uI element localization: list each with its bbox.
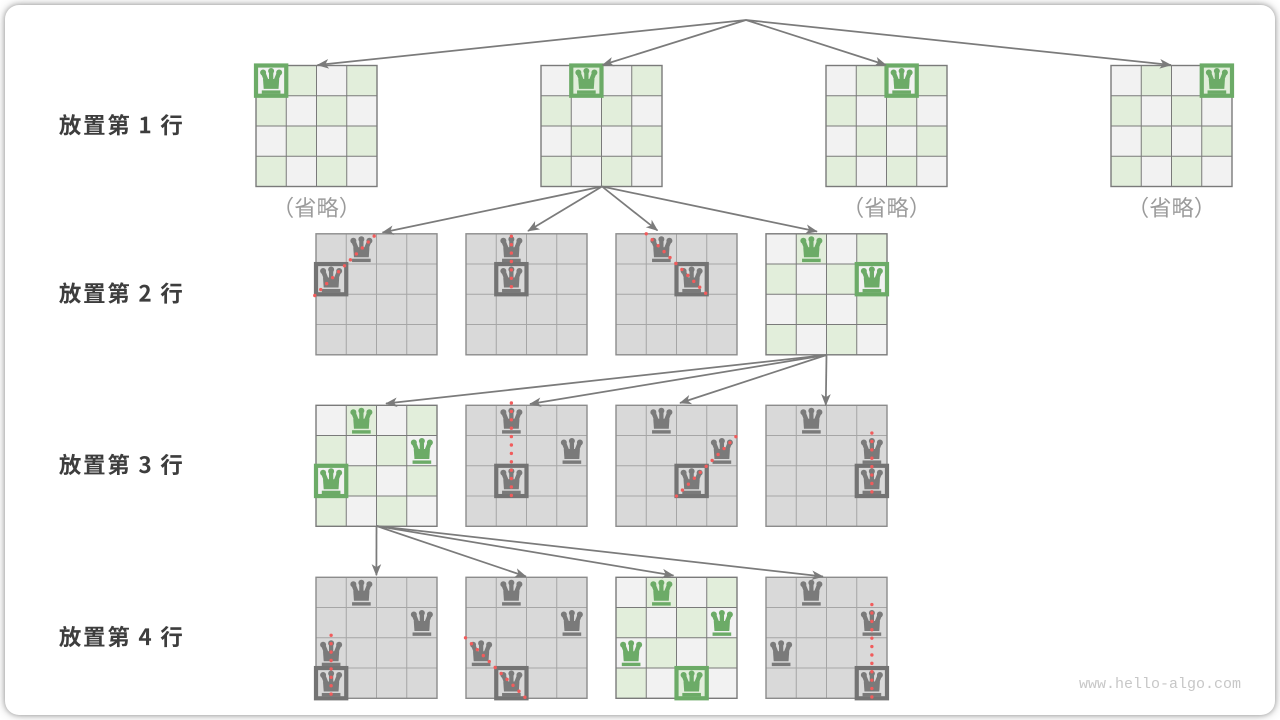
svg-text:www.hello-algo.com: www.hello-algo.com <box>1079 676 1241 693</box>
